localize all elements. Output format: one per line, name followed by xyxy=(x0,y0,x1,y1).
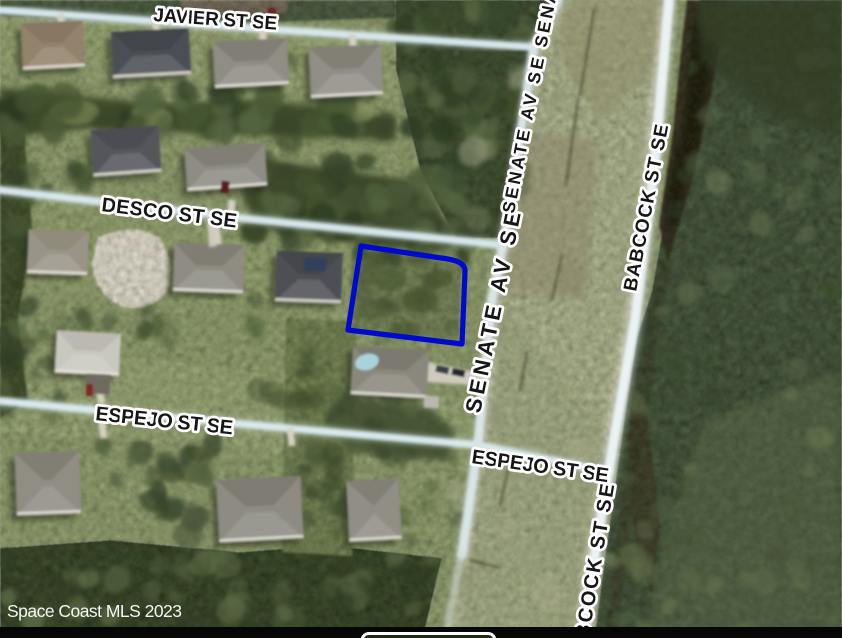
svg-text:Space Coast MLS 2023: Space Coast MLS 2023 xyxy=(7,601,182,621)
